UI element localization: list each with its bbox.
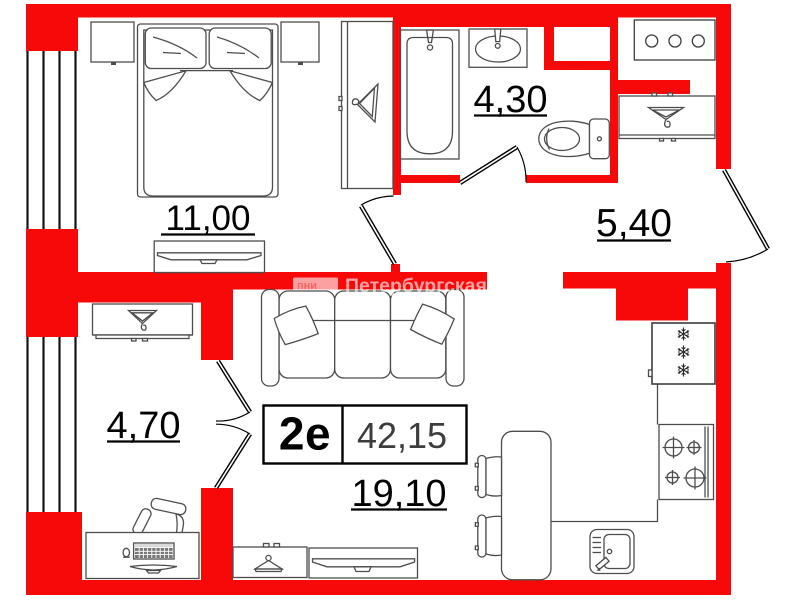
svg-text:пни: пни	[297, 280, 317, 292]
svg-text:2e: 2e	[279, 408, 331, 460]
svg-text:11,00: 11,00	[166, 199, 251, 238]
svg-text:Петербургская: Петербургская	[345, 275, 487, 297]
svg-text:42,15: 42,15	[357, 415, 447, 456]
svg-text:5,40: 5,40	[596, 202, 672, 245]
